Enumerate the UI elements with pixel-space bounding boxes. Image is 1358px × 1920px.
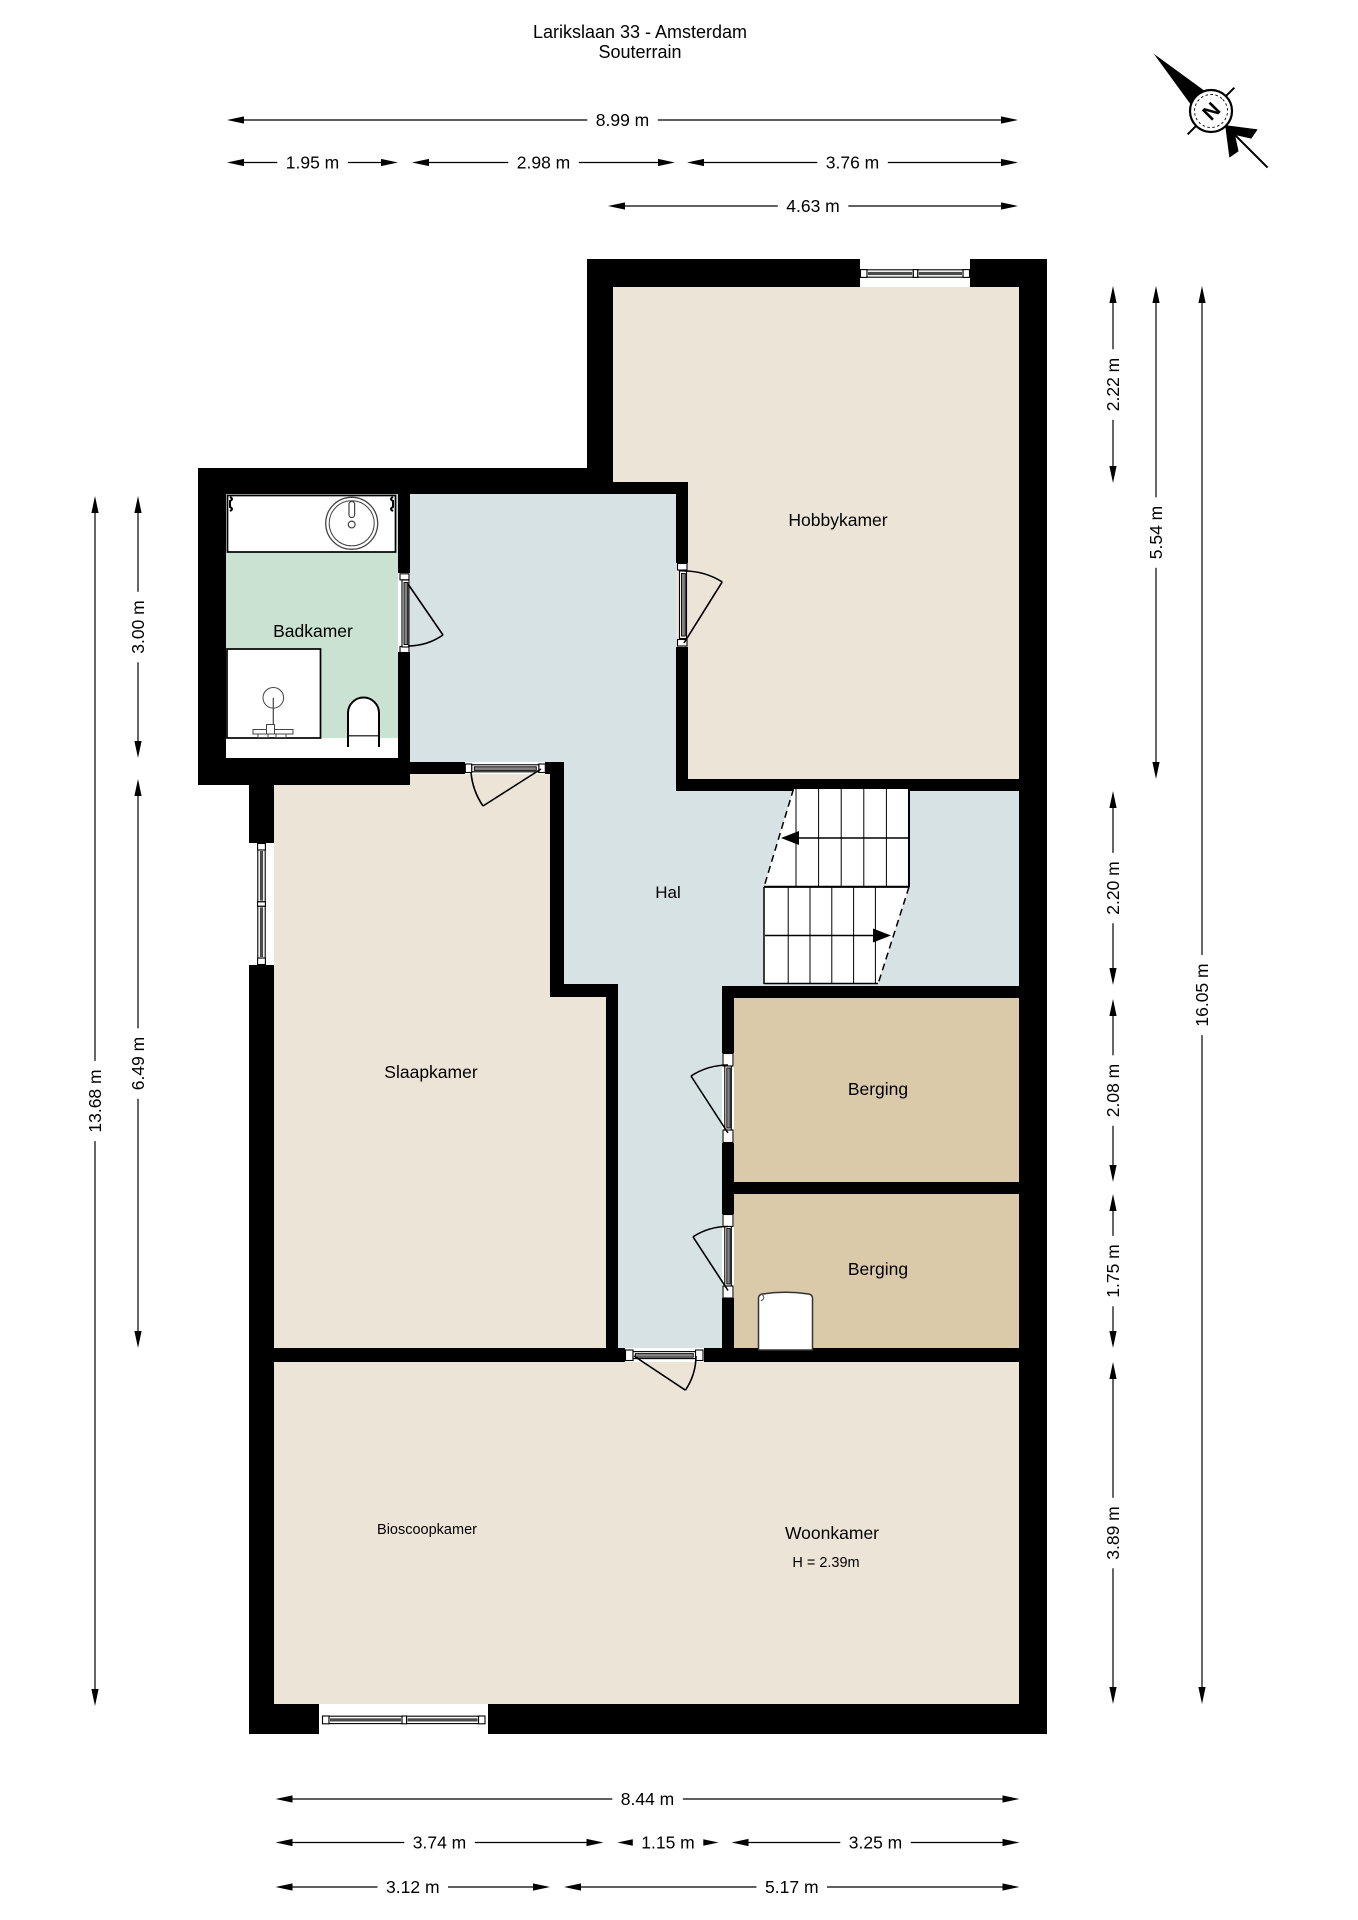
svg-text:3.74 m: 3.74 m — [413, 1833, 467, 1853]
svg-text:H = 2.39m: H = 2.39m — [792, 1555, 859, 1571]
svg-text:Hobbykamer: Hobbykamer — [788, 510, 887, 530]
svg-text:1.15 m: 1.15 m — [641, 1833, 695, 1853]
svg-text:8.99 m: 8.99 m — [596, 110, 650, 130]
svg-text:1.75 m: 1.75 m — [1103, 1244, 1123, 1298]
svg-text:Woonkamer: Woonkamer — [785, 1523, 879, 1543]
svg-text:1.95 m: 1.95 m — [286, 153, 340, 173]
svg-text:Bioscoopkamer: Bioscoopkamer — [377, 1522, 477, 1538]
svg-text:4.63 m: 4.63 m — [786, 196, 840, 216]
svg-text:Berging: Berging — [848, 1259, 908, 1279]
svg-text:5.54 m: 5.54 m — [1146, 506, 1166, 560]
svg-text:2.08 m: 2.08 m — [1103, 1064, 1123, 1118]
svg-text:3.89 m: 3.89 m — [1103, 1506, 1123, 1560]
svg-text:Hal: Hal — [655, 883, 681, 902]
svg-text:5.17 m: 5.17 m — [765, 1877, 819, 1897]
svg-text:16.05 m: 16.05 m — [1192, 963, 1212, 1026]
svg-text:13.68 m: 13.68 m — [85, 1069, 105, 1132]
svg-text:3.12 m: 3.12 m — [386, 1877, 440, 1897]
svg-text:8.44 m: 8.44 m — [621, 1789, 675, 1809]
svg-text:2.20 m: 2.20 m — [1103, 861, 1123, 915]
svg-text:3.76 m: 3.76 m — [826, 153, 880, 173]
svg-text:Badkamer: Badkamer — [273, 621, 353, 641]
svg-text:2.22 m: 2.22 m — [1103, 358, 1123, 412]
svg-text:6.49 m: 6.49 m — [128, 1037, 148, 1091]
svg-text:Larikslaan 33 - Amsterdam: Larikslaan 33 - Amsterdam — [533, 22, 747, 42]
svg-text:Slaapkamer: Slaapkamer — [384, 1062, 478, 1082]
svg-text:Berging: Berging — [848, 1079, 908, 1099]
svg-text:Souterrain: Souterrain — [598, 42, 681, 62]
svg-text:2.98 m: 2.98 m — [517, 153, 571, 173]
svg-text:3.25 m: 3.25 m — [849, 1833, 903, 1853]
svg-text:3.00 m: 3.00 m — [128, 600, 148, 654]
